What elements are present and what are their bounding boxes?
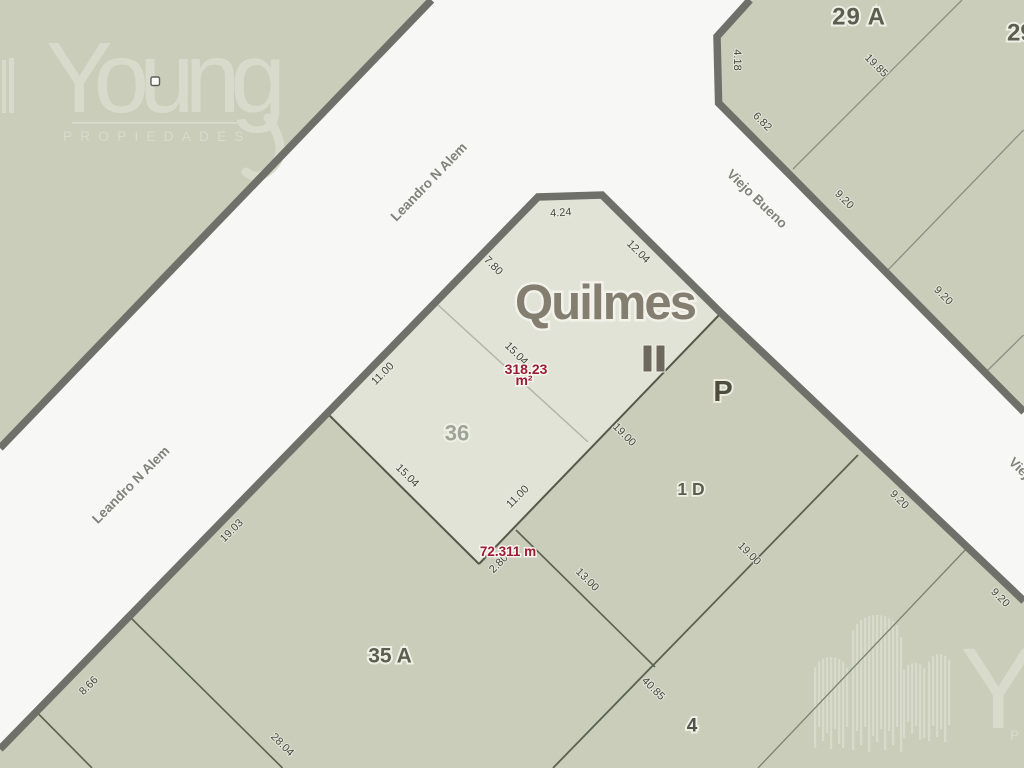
svg-text:4: 4 (687, 716, 698, 737)
svg-text:P: P (713, 376, 732, 408)
svg-text:1 D: 1 D (677, 479, 704, 499)
svg-text:4.18: 4.18 (731, 49, 743, 70)
svg-text:29: 29 (1007, 20, 1024, 47)
svg-text:PRO: PRO (1010, 728, 1024, 743)
svg-text:m²: m² (515, 372, 532, 388)
svg-text:Quilmes: Quilmes (515, 276, 697, 330)
svg-text:72.311 m: 72.311 m (480, 544, 536, 559)
svg-text:36: 36 (445, 421, 469, 446)
svg-text:4.24: 4.24 (550, 206, 572, 219)
svg-text:Young: Young (46, 22, 286, 134)
svg-text:PROPIEDADES: PROPIEDADES (63, 129, 249, 144)
svg-text:29 A: 29 A (832, 4, 886, 31)
svg-text:35 A: 35 A (368, 645, 412, 668)
